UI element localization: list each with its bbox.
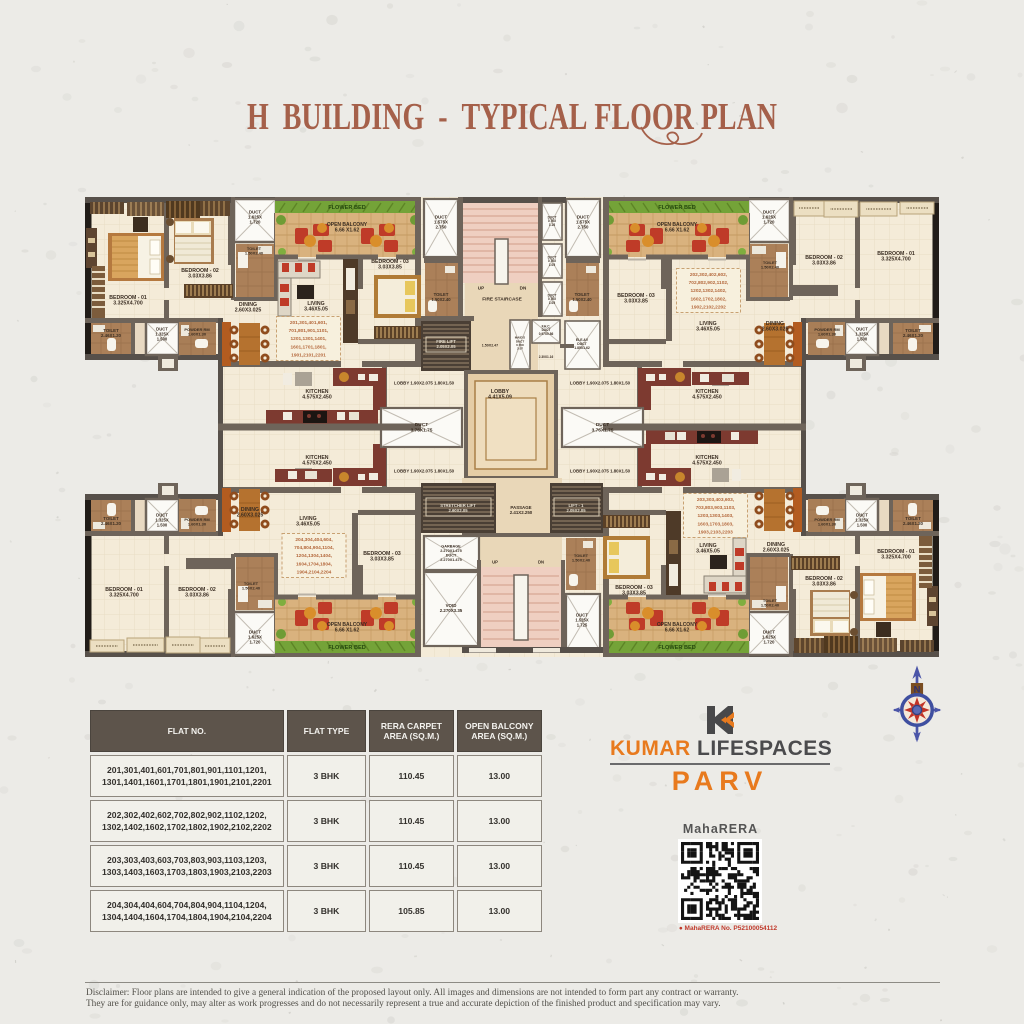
svg-text:204,304,404,604,: 204,304,404,604, xyxy=(295,537,333,543)
svg-text:DUCT: DUCT xyxy=(596,422,609,428)
svg-text:2.60X2.05: 2.60X2.05 xyxy=(448,508,468,513)
svg-text:1.50X2.40: 1.50X2.40 xyxy=(242,586,261,591)
svg-text:3.325X4.700: 3.325X4.700 xyxy=(109,593,139,599)
svg-text:1204,1304,1404,: 1204,1304,1404, xyxy=(296,553,333,559)
svg-text:3.03X3.86: 3.03X3.86 xyxy=(185,593,209,599)
svg-text:DN: DN xyxy=(538,560,544,565)
svg-text:3.46X5.05: 3.46X5.05 xyxy=(296,522,320,528)
svg-text:2.46X1.20: 2.46X1.20 xyxy=(903,333,924,338)
svg-text:3.03X3.86: 3.03X3.86 xyxy=(812,582,836,588)
svg-text:2.270X3.35: 2.270X3.35 xyxy=(440,608,463,613)
svg-text:3.46X5.05: 3.46X5.05 xyxy=(696,549,720,555)
svg-text:1202,1302,1402,: 1202,1302,1402, xyxy=(690,288,727,294)
svg-text:1.50X2.40: 1.50X2.40 xyxy=(245,251,264,256)
svg-text:3.325X4.700: 3.325X4.700 xyxy=(881,555,911,561)
svg-text:3.76X1.75: 3.76X1.75 xyxy=(592,427,614,433)
svg-text:6.66 X1.62: 6.66 X1.62 xyxy=(665,628,689,634)
svg-text:1201,1301,1401,: 1201,1301,1401, xyxy=(290,336,327,342)
svg-text:UP: UP xyxy=(492,560,498,565)
svg-text:0.97X0.86: 0.97X0.86 xyxy=(539,332,554,336)
svg-text:FLOWER BED: FLOWER BED xyxy=(658,205,696,211)
svg-text:2.60X3.025: 2.60X3.025 xyxy=(235,308,262,314)
svg-text:1.720: 1.720 xyxy=(250,220,262,225)
svg-text:201,301,401,601,: 201,301,401,601, xyxy=(290,320,328,326)
svg-text:1203,1303,1403,: 1203,1303,1403, xyxy=(697,513,734,519)
svg-text:6.66 X1.62: 6.66 X1.62 xyxy=(335,228,359,234)
svg-text:1603,1703,1803,: 1603,1703,1803, xyxy=(697,521,734,527)
svg-text:2.41X2.250: 2.41X2.250 xyxy=(510,510,533,515)
svg-text:1.725: 1.725 xyxy=(577,622,588,627)
svg-text:3.03X3.85: 3.03X3.85 xyxy=(378,265,402,271)
svg-text:202,302,402,602,: 202,302,402,602, xyxy=(690,272,728,278)
svg-text:3.03X3.86: 3.03X3.86 xyxy=(188,274,212,280)
svg-text:1.50X2.40: 1.50X2.40 xyxy=(572,297,592,302)
svg-text:1902,2102,2202: 1902,2102,2202 xyxy=(691,305,726,311)
svg-text:2.60X3.025: 2.60X3.025 xyxy=(237,513,264,519)
svg-text:DUCT: DUCT xyxy=(415,422,428,428)
svg-text:1.500: 1.500 xyxy=(857,336,868,341)
svg-text:1.500: 1.500 xyxy=(857,522,868,527)
svg-text:2.750: 2.750 xyxy=(578,225,590,230)
svg-text:1.50X2.40: 1.50X2.40 xyxy=(761,603,780,608)
svg-text:DN: DN xyxy=(520,286,527,291)
svg-text:1.50X2.40: 1.50X2.40 xyxy=(761,265,780,270)
svg-text:1.05: 1.05 xyxy=(549,301,555,305)
svg-text:2.05X2.05: 2.05X2.05 xyxy=(436,344,456,349)
svg-text:2.46X1.20: 2.46X1.20 xyxy=(101,521,122,526)
svg-text:1.500: 1.500 xyxy=(157,522,168,527)
svg-text:2.750: 2.750 xyxy=(436,225,448,230)
svg-text:1.60X1.30: 1.60X1.30 xyxy=(188,332,207,337)
svg-text:4.575X2.450: 4.575X2.450 xyxy=(302,461,332,467)
svg-text:LOBBY 1.90X2.075 1.80X1.50: LOBBY 1.90X2.075 1.80X1.50 xyxy=(570,469,631,474)
svg-text:703,803,903,1103,: 703,803,903,1103, xyxy=(696,505,736,511)
svg-text:1.60X1.30: 1.60X1.30 xyxy=(818,332,837,337)
svg-text:702,802,902,1102,: 702,802,902,1102, xyxy=(689,280,729,286)
svg-text:4.41X5.09: 4.41X5.09 xyxy=(488,395,512,401)
svg-text:2.60X3.025: 2.60X3.025 xyxy=(763,548,790,554)
svg-text:1.720: 1.720 xyxy=(764,640,776,645)
svg-text:FLOWER BED: FLOWER BED xyxy=(328,205,366,211)
svg-text:LOBBY 1.90X2.075 1.80X1.50: LOBBY 1.90X2.075 1.80X1.50 xyxy=(394,469,455,474)
svg-text:2.60X3.025: 2.60X3.025 xyxy=(762,327,789,333)
svg-text:1.16: 1.16 xyxy=(549,223,555,227)
svg-text:1.60X1.30: 1.60X1.30 xyxy=(188,522,207,527)
svg-text:3.46X5.05: 3.46X5.05 xyxy=(696,327,720,333)
svg-text:1.720: 1.720 xyxy=(250,640,262,645)
svg-text:FIRE STAIRCASE: FIRE STAIRCASE xyxy=(482,297,522,303)
svg-text:FLOWER BED: FLOWER BED xyxy=(658,645,696,651)
svg-text:3.03X3.85: 3.03X3.85 xyxy=(624,299,648,305)
svg-text:6.66 X1.62: 6.66 X1.62 xyxy=(665,228,689,234)
svg-text:DUCT: DUCT xyxy=(446,554,457,558)
svg-text:2.46X1.20: 2.46X1.20 xyxy=(903,521,924,526)
svg-text:2.270X1.475: 2.270X1.475 xyxy=(440,549,462,553)
svg-text:701,801,901,1101,: 701,801,901,1101, xyxy=(289,328,329,334)
svg-text:1604,1704,1804,: 1604,1704,1804, xyxy=(296,561,333,567)
svg-text:1.60X1.30: 1.60X1.30 xyxy=(818,522,837,527)
svg-text:1.50X2.40: 1.50X2.40 xyxy=(572,558,591,563)
svg-text:LOBBY 1.90X2.075 1.80X1.50: LOBBY 1.90X2.075 1.80X1.50 xyxy=(394,381,455,386)
svg-text:1602,1702,1802,: 1602,1702,1802, xyxy=(690,296,727,302)
svg-text:1.720: 1.720 xyxy=(764,220,776,225)
svg-text:6.66 X1.62: 6.66 X1.62 xyxy=(335,628,359,634)
svg-text:1601,1701,1801,: 1601,1701,1801, xyxy=(290,344,327,350)
svg-text:1.500: 1.500 xyxy=(157,336,168,341)
svg-text:1.50X2.40: 1.50X2.40 xyxy=(431,297,451,302)
svg-text:4.575X2.450: 4.575X2.450 xyxy=(692,395,722,401)
svg-text:1.85X1.62: 1.85X1.62 xyxy=(574,346,590,350)
svg-text:2.270X1.475: 2.270X1.475 xyxy=(440,558,462,562)
svg-text:2.30X1.16: 2.30X1.16 xyxy=(539,355,554,359)
svg-text:H BUILDING - TYPICAL FLOOR: H BUILDING - TYPICAL FLOOR PLAN xyxy=(247,96,777,138)
svg-text:3.03X3.85: 3.03X3.85 xyxy=(370,557,394,563)
svg-text:GARBAGE: GARBAGE xyxy=(441,545,461,549)
svg-text:4.575X2.450: 4.575X2.450 xyxy=(692,461,722,467)
svg-text:1903,2103,2203: 1903,2103,2203 xyxy=(698,530,733,536)
svg-text:3.325X4.700: 3.325X4.700 xyxy=(881,257,911,263)
svg-text:1904,2104,2204: 1904,2104,2204 xyxy=(297,570,332,576)
svg-text:LOBBY 1.90X2.075 1.80X1.50: LOBBY 1.90X2.075 1.80X1.50 xyxy=(570,381,631,386)
svg-text:4.575X2.450: 4.575X2.450 xyxy=(302,395,332,401)
svg-text:704,804,904,1104,: 704,804,904,1104, xyxy=(294,545,334,551)
svg-text:2.05X2.05: 2.05X2.05 xyxy=(566,508,586,513)
svg-text:203,303,403,603,: 203,303,403,603, xyxy=(697,497,735,503)
svg-text:3.76X1.75: 3.76X1.75 xyxy=(411,427,433,433)
svg-text:2.46X1.20: 2.46X1.20 xyxy=(101,333,122,338)
svg-text:UP: UP xyxy=(478,286,484,291)
svg-text:3.46X5.05: 3.46X5.05 xyxy=(304,307,328,313)
svg-text:1901,2101,2201: 1901,2101,2201 xyxy=(291,353,326,359)
svg-text:1.50X2.47: 1.50X2.47 xyxy=(482,343,498,347)
svg-text:3.03X3.86: 3.03X3.86 xyxy=(812,261,836,267)
svg-text:3.03X3.85: 3.03X3.85 xyxy=(622,591,646,597)
svg-text:3.325X4.700: 3.325X4.700 xyxy=(113,301,143,307)
svg-text:1.05: 1.05 xyxy=(549,263,555,267)
svg-text:FLOWER BED: FLOWER BED xyxy=(328,645,366,651)
svg-text:2.07: 2.07 xyxy=(517,347,523,351)
